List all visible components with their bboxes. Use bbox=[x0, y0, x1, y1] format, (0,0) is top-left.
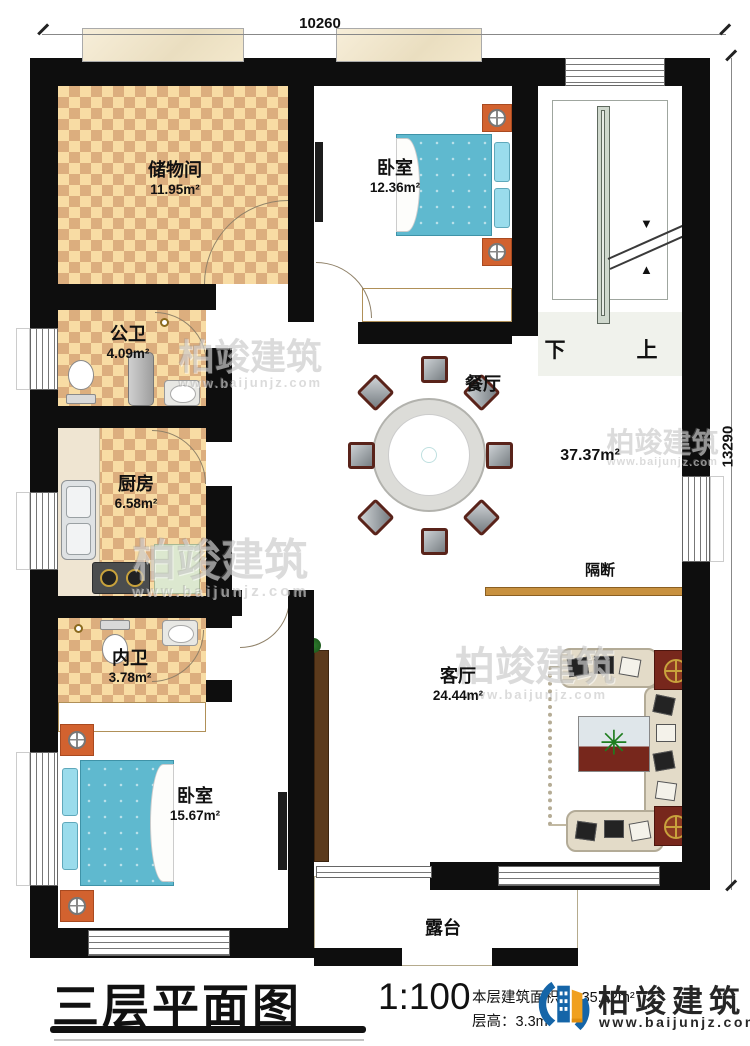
window-sill-4 bbox=[710, 476, 724, 562]
dimension-top-value: 10260 bbox=[265, 15, 375, 32]
sink-inner-bath bbox=[162, 620, 198, 646]
wall-kitchen-right-a bbox=[206, 406, 232, 442]
terrace-stub-right bbox=[492, 948, 578, 966]
wall-kitchen-right-b bbox=[206, 486, 232, 596]
nightstand-bottom-1 bbox=[60, 724, 94, 756]
brand-logo: 柏竣建筑 www.baijunjz.com bbox=[536, 974, 746, 1040]
lamp-icon bbox=[68, 731, 86, 749]
window-stairs-top bbox=[565, 58, 665, 86]
tv-bedroom-top bbox=[315, 142, 323, 222]
wall-public-bath-right bbox=[206, 348, 232, 406]
dining-chair bbox=[486, 442, 513, 469]
window-bottom-bedroom bbox=[88, 930, 230, 956]
dining-table bbox=[372, 398, 486, 512]
stairs-up-label: 上 bbox=[632, 338, 662, 363]
bedroom-bottom-label: 卧室 15.67m² bbox=[125, 786, 265, 824]
bed-bottom-pillow-2 bbox=[62, 822, 78, 870]
kitchen-label: 厨房 6.58m² bbox=[76, 474, 196, 512]
terrace-label: 露台 bbox=[388, 918, 498, 940]
window-sill-2 bbox=[16, 492, 30, 570]
sofa-top bbox=[560, 648, 658, 688]
wardrobe-bedroom-top bbox=[362, 288, 512, 322]
bedroom-top-label: 卧室 12.36m² bbox=[330, 158, 460, 196]
wall-bedroom-top-bottom bbox=[358, 322, 512, 344]
living-label: 客厅 24.44m² bbox=[398, 666, 518, 704]
public-bath-label: 公卫 4.09m² bbox=[68, 324, 188, 362]
dining-label: 餐厅 bbox=[440, 374, 526, 396]
terrace-door bbox=[316, 866, 432, 878]
plant-icon: ✳ bbox=[600, 726, 629, 760]
dimension-line-top bbox=[42, 34, 726, 35]
brand-logo-icon bbox=[536, 976, 594, 1036]
tv-cabinet bbox=[314, 650, 329, 862]
ceiling-lamp-icon bbox=[74, 624, 83, 633]
stairs-rail bbox=[597, 106, 610, 324]
window-left-bedroom bbox=[30, 752, 58, 886]
nightstand-top-2 bbox=[482, 238, 512, 266]
nightstand-top-1 bbox=[482, 104, 512, 132]
title-underline-thick bbox=[50, 1026, 366, 1033]
bed-top-pillow-1 bbox=[494, 142, 510, 182]
bed-top-pillow-2 bbox=[494, 188, 510, 228]
stairs-arrow-up-icon: ▲ bbox=[640, 262, 653, 277]
wall-storage-right bbox=[288, 58, 314, 322]
wall-bedroom-bottom-right bbox=[288, 590, 314, 958]
wall-right bbox=[682, 58, 710, 890]
window-sill-3 bbox=[16, 752, 30, 886]
title-underline-thin bbox=[54, 1039, 364, 1041]
dining-chair bbox=[348, 442, 375, 469]
hall-area-label: 37.37m² bbox=[540, 446, 640, 465]
sink-public-bath bbox=[164, 380, 200, 406]
dimension-right-value: 13290 bbox=[720, 407, 737, 487]
window-sill-1 bbox=[16, 328, 30, 390]
kitchen-stove bbox=[92, 562, 150, 594]
partition-label: 隔断 bbox=[565, 562, 635, 580]
nightstand-bottom-2 bbox=[60, 890, 94, 922]
tv-bedroom-bottom bbox=[278, 792, 287, 870]
wall-stairs-left bbox=[512, 58, 538, 336]
window-right-living bbox=[682, 476, 710, 562]
wall-innerbath-right-a bbox=[206, 590, 242, 616]
stairs-arrow-down-icon: ▼ bbox=[640, 216, 653, 231]
dining-chair bbox=[421, 528, 448, 555]
toilet-public-bath bbox=[66, 360, 96, 404]
floor-plan: ▼ ▲ 下 上 bbox=[0, 0, 750, 1046]
brand-website: www.baijunjz.com bbox=[599, 1014, 750, 1030]
wall-kitchen-innerbath bbox=[30, 596, 206, 618]
bed-bottom-pillow-1 bbox=[62, 768, 78, 816]
plan-scale: 1:100 bbox=[378, 976, 471, 1018]
wall-bath-kitchen bbox=[30, 406, 206, 428]
lamp-icon bbox=[68, 897, 86, 915]
wall-storage-bottom bbox=[30, 284, 216, 310]
stairs-down-label: 下 bbox=[540, 338, 570, 363]
wall-innerbath-right-b bbox=[206, 616, 232, 628]
window-left-kitchen bbox=[30, 492, 58, 570]
wall-innerbath-right-c bbox=[206, 680, 232, 702]
window-left-bath bbox=[30, 328, 58, 390]
inner-bath-label: 内卫 3.78m² bbox=[70, 648, 190, 686]
bedroom-bottom-floor-mid bbox=[206, 700, 288, 736]
kitchen-board bbox=[154, 544, 200, 594]
storage-label: 储物间 11.95m² bbox=[95, 160, 255, 198]
lamp-icon bbox=[488, 243, 506, 261]
window-bottom-living bbox=[498, 866, 660, 886]
lamp-icon bbox=[488, 109, 506, 127]
partition-bar bbox=[485, 587, 683, 596]
coffee-table: ✳ bbox=[578, 716, 650, 772]
terrace-stub-left bbox=[314, 948, 402, 966]
floor-height-label: 层高： bbox=[472, 1014, 516, 1030]
sofa-bottom bbox=[566, 810, 664, 852]
